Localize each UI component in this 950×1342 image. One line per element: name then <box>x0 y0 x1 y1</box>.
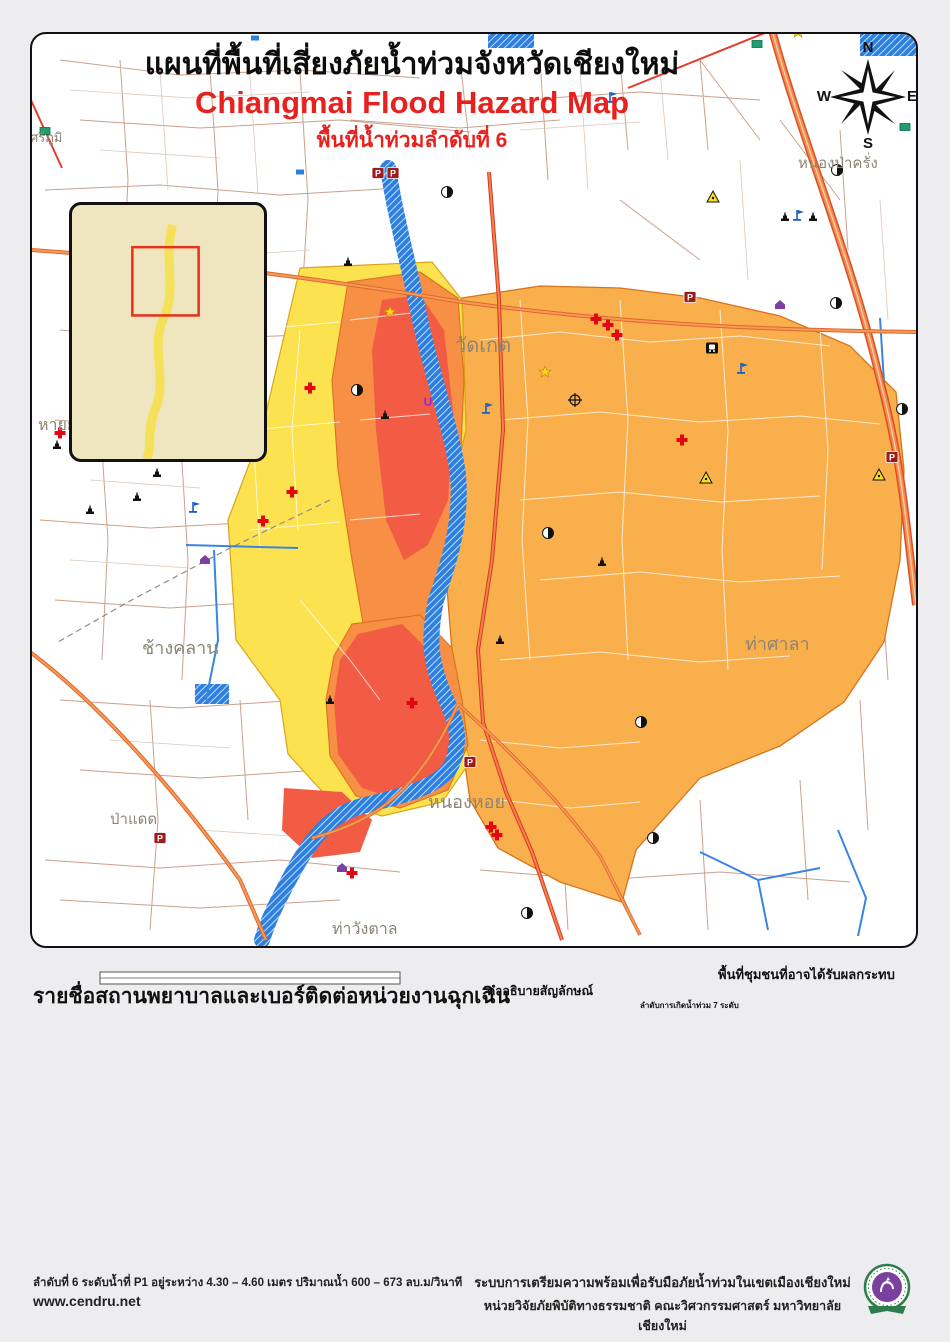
map-canvas: PPPPPPU วัดเกตหนองป่าครั่งช้างคลานท่าศาล… <box>30 32 918 948</box>
school-icon <box>189 502 200 513</box>
university-research-unit-logo <box>856 1262 918 1318</box>
compass-letter: E <box>907 88 917 105</box>
credit-line-1: ระบบการเตรียมความพร้อมเพื่อรับมือภัยน้ำท… <box>470 1272 855 1293</box>
school-icon <box>793 210 804 221</box>
temple-icon <box>53 440 61 450</box>
compass-letter: N <box>863 39 874 56</box>
temple-icon <box>344 257 352 267</box>
police-station-icon: P <box>154 833 166 844</box>
svg-text:P: P <box>390 169 396 179</box>
svg-text:P: P <box>467 758 473 768</box>
police-station-icon: P <box>387 168 399 179</box>
pond <box>195 684 229 704</box>
flood-hazard-poster: PPPPPPU วัดเกตหนองป่าครั่งช้างคลานท่าศาล… <box>0 0 950 1342</box>
gas-station-icon <box>636 717 647 728</box>
pond <box>488 32 534 48</box>
gas-station-icon <box>352 385 363 396</box>
district-label: หนองป่าครั่ง <box>798 152 878 172</box>
flood-levels-header: ลำดับการเกิดน้ำท่วม 7 ระดับ <box>640 999 739 1012</box>
svg-text:P: P <box>375 169 381 179</box>
temple-icon <box>133 492 141 502</box>
gas-station-icon <box>897 404 908 415</box>
inset-river-band <box>146 225 172 459</box>
district-label: ป่าแดด <box>110 811 157 828</box>
temple-icon <box>809 212 817 222</box>
map-drawing: PPPPPPU วัดเกตหนองป่าครั่งช้างคลานท่าศาล… <box>30 32 918 948</box>
inset-overview-map <box>69 202 267 462</box>
legend-header: คำอธิบายสัญลักษณ์ <box>487 981 593 1001</box>
flood-zone-level5 <box>442 286 904 902</box>
police-station-icon: P <box>886 452 898 463</box>
water-marker-icon <box>296 170 304 175</box>
highway-southwest <box>30 652 266 940</box>
route-red-topright <box>628 32 772 88</box>
hospital-directory-header: รายชื่อสถานพยาบาลและเบอร์ติดต่อหน่วยงานฉ… <box>33 980 510 1013</box>
village-icon <box>200 555 210 564</box>
svg-text:P: P <box>157 834 163 844</box>
gas-station-icon <box>442 187 453 198</box>
credit-line-2: หน่วยวิจัยภัยพิบัติทางธรรมชาติ คณะวิศวกร… <box>470 1296 855 1336</box>
website-url: www.cendru.net <box>33 1293 141 1309</box>
district-label: ท่าศาลา <box>745 634 810 654</box>
water-marker-icon <box>251 36 259 41</box>
route-marker-icon <box>752 41 762 48</box>
police-station-icon: P <box>372 168 384 179</box>
district-label: ช้างคลาน <box>142 638 219 658</box>
district-label: ท่าวังตาล <box>332 921 398 938</box>
compass-letter: W <box>817 88 832 105</box>
police-station-icon: P <box>464 757 476 768</box>
compass-letter: S <box>863 135 873 152</box>
police-station-icon: P <box>684 292 696 303</box>
route-marker-icon <box>900 124 910 131</box>
train-station-icon <box>706 343 718 354</box>
district-label: ศรีภูมิ <box>30 130 62 146</box>
gas-station-icon <box>543 528 554 539</box>
district-label: หนองหอย <box>428 792 505 812</box>
hospital-icon <box>347 868 358 879</box>
gas-station-icon <box>648 833 659 844</box>
temple-icon <box>153 468 161 478</box>
utility-agency-icon <box>707 191 719 202</box>
svg-text:P: P <box>889 453 895 463</box>
temple-icon <box>86 505 94 515</box>
svg-text:P: P <box>687 293 693 303</box>
flood-order-note: ลำดับที่ 6 ระดับน้ำที่ P1 อยู่ระหว่าง 4.… <box>33 1274 462 1292</box>
shopping-center-icon <box>792 32 804 37</box>
university-icon: U <box>424 395 433 409</box>
village-icon <box>337 863 347 872</box>
gas-station-icon <box>831 298 842 309</box>
district-label: วัดเกต <box>455 335 511 357</box>
temple-icon <box>781 212 789 222</box>
impact-areas-header: พื้นที่ชุมชนที่อาจได้รับผลกระทบ <box>718 964 895 985</box>
credits-block: ระบบการเตรียมความพร้อมเพื่อรับมือภัยน้ำท… <box>470 1272 855 1336</box>
village-icon <box>775 300 785 309</box>
school-icon <box>606 92 617 103</box>
svg-text:U: U <box>424 395 433 409</box>
gas-station-icon <box>522 908 533 919</box>
